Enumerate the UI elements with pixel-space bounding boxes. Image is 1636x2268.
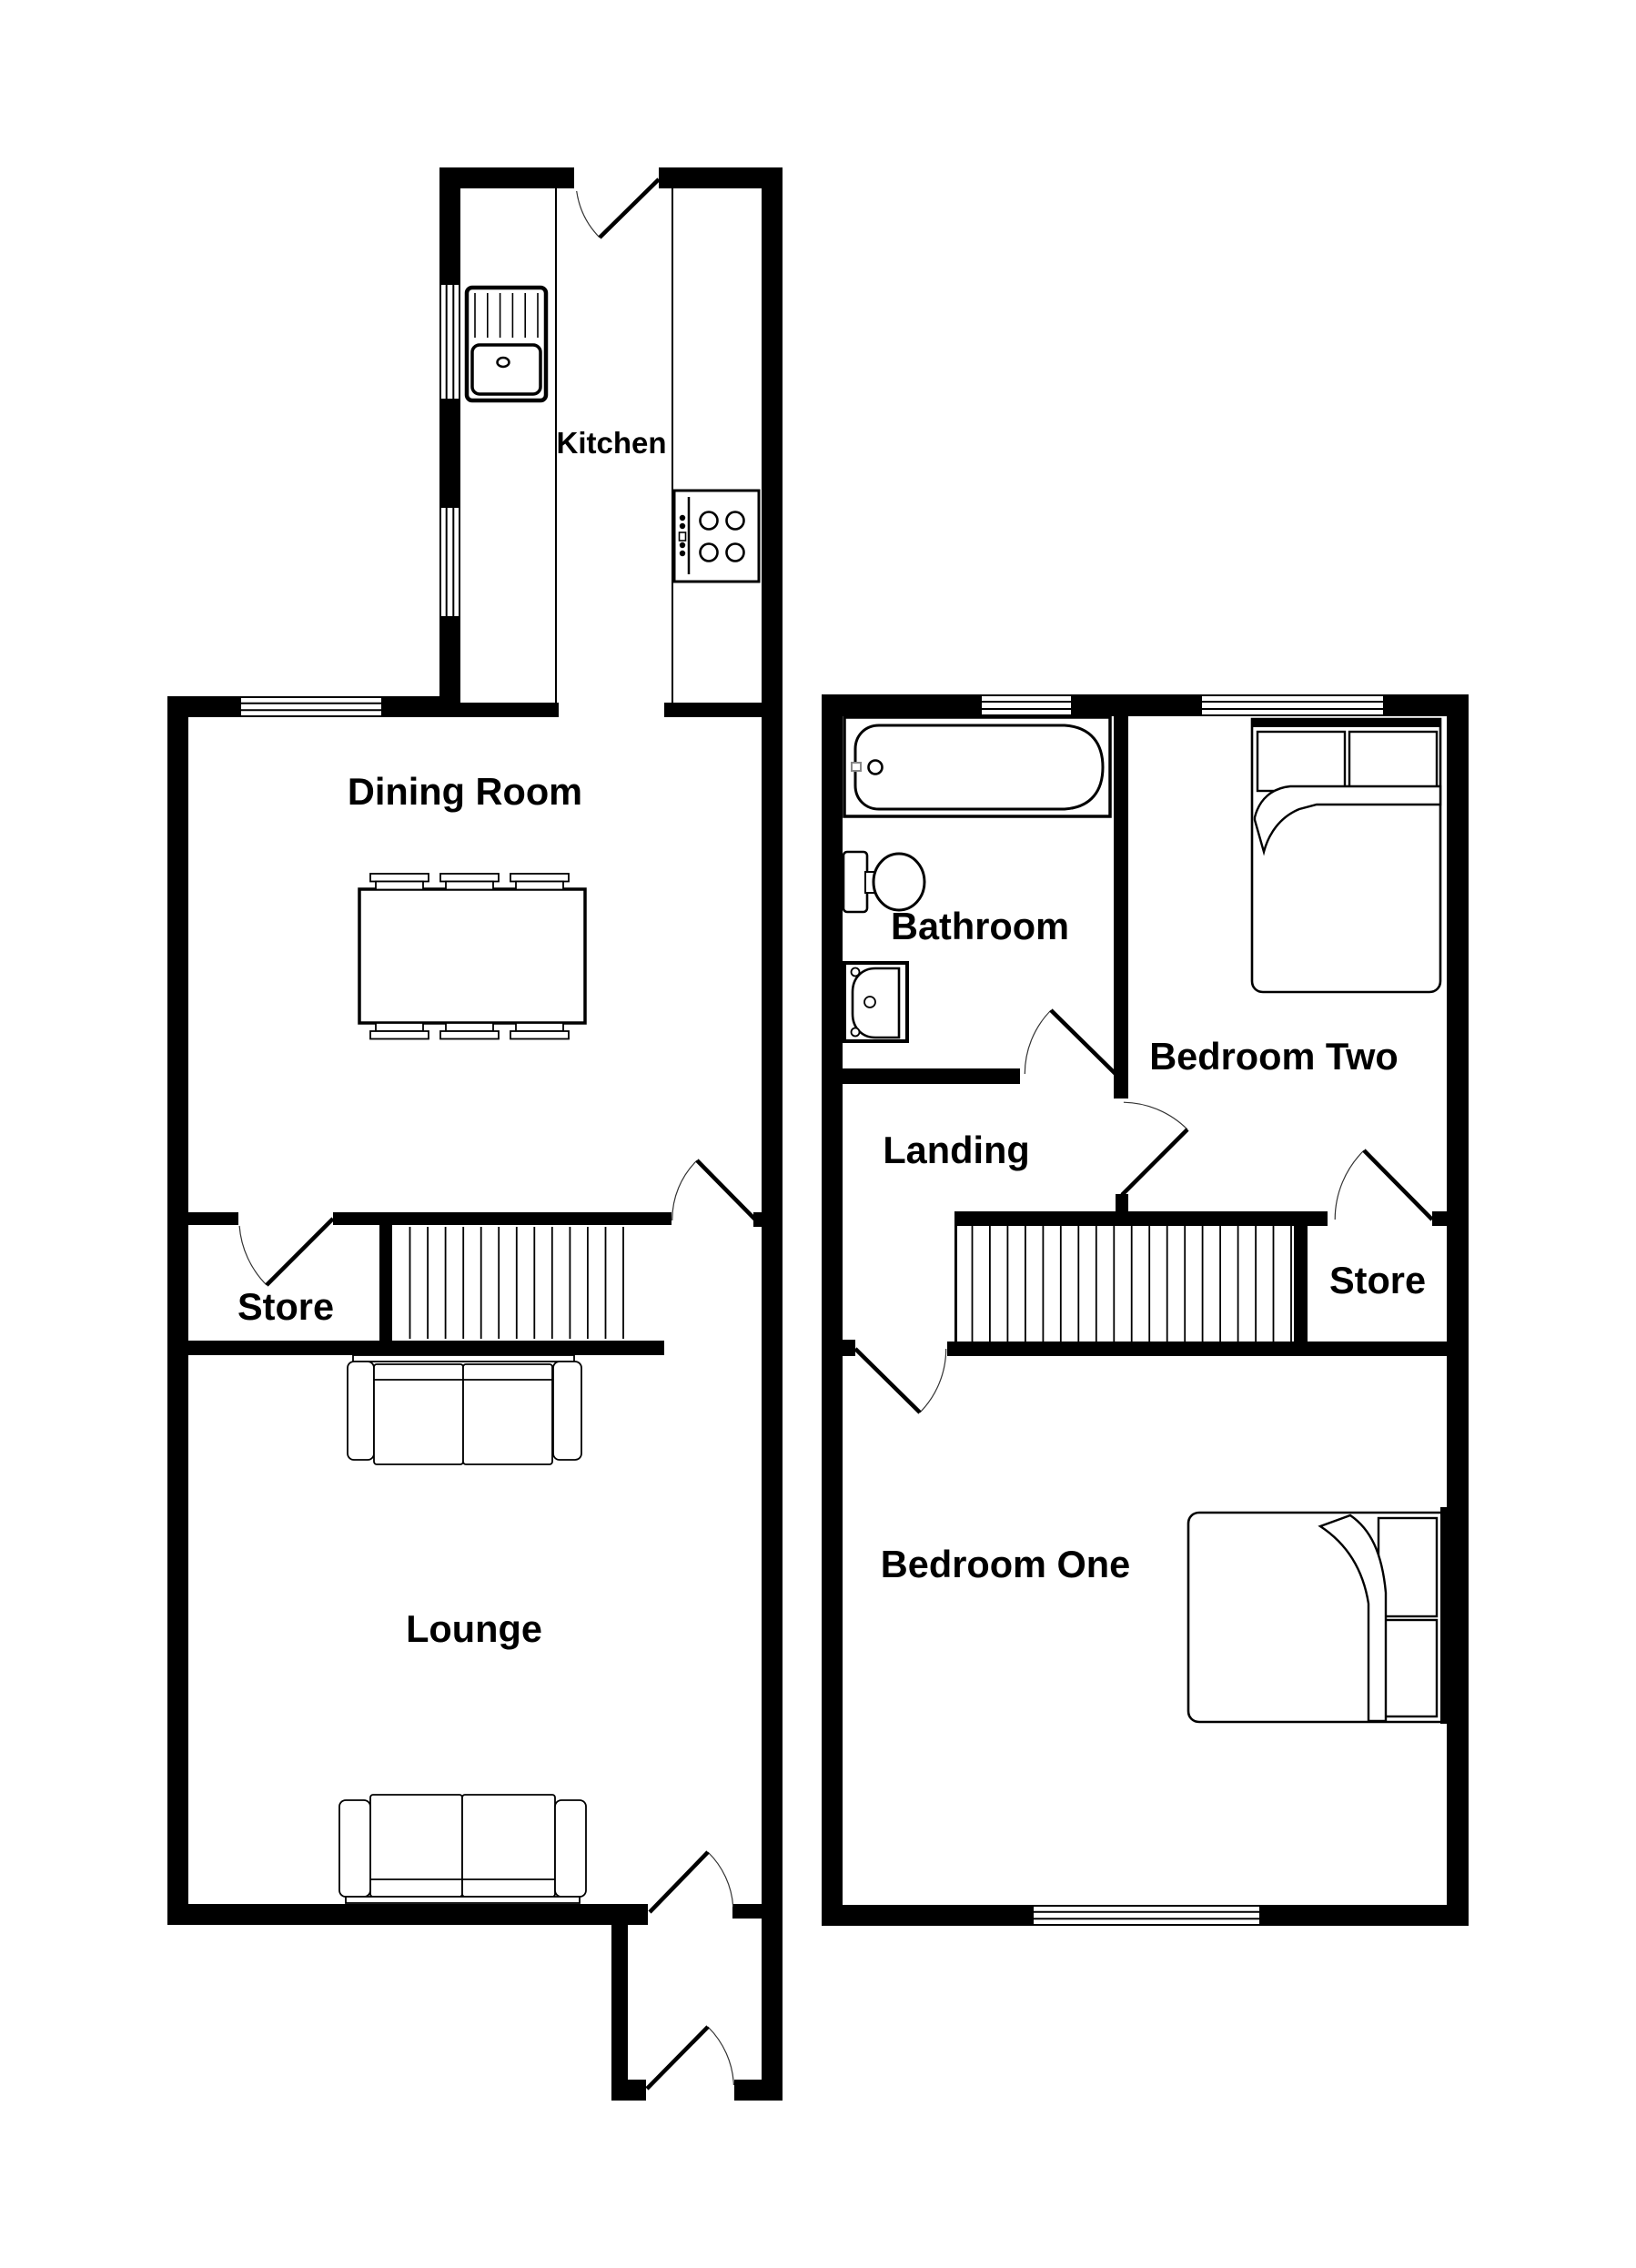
svg-text:Bedroom Two: Bedroom Two xyxy=(1149,1035,1399,1078)
svg-text:Dining Room: Dining Room xyxy=(348,770,582,813)
svg-text:Store: Store xyxy=(237,1285,334,1328)
svg-text:Landing: Landing xyxy=(883,1129,1029,1171)
svg-text:Bathroom: Bathroom xyxy=(891,905,1069,947)
svg-text:Lounge: Lounge xyxy=(406,1607,542,1650)
svg-text:Bedroom One: Bedroom One xyxy=(881,1543,1130,1585)
svg-text:Kitchen: Kitchen xyxy=(556,426,666,460)
svg-text:Store: Store xyxy=(1329,1259,1426,1301)
